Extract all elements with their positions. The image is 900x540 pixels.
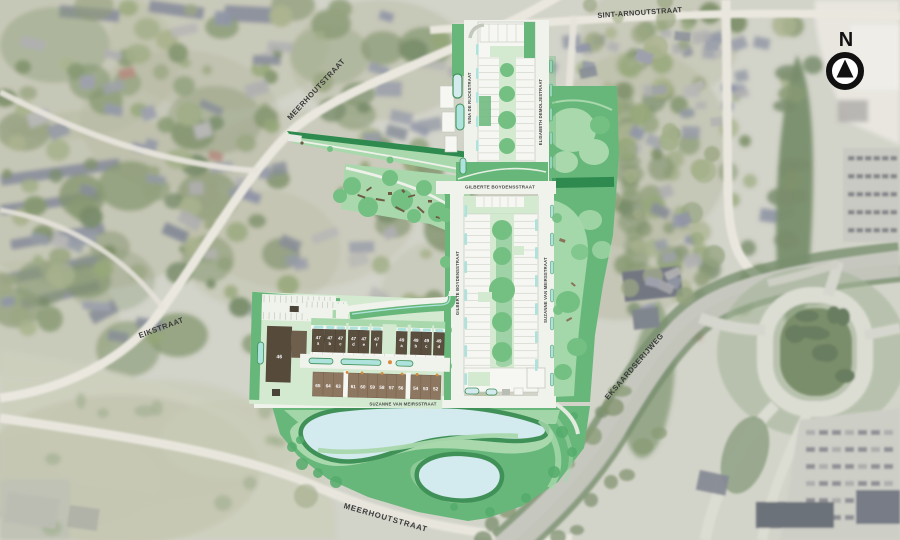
svg-text:47: 47	[351, 336, 357, 341]
svg-text:49: 49	[436, 338, 442, 343]
svg-text:47: 47	[327, 335, 333, 340]
svg-text:64: 64	[326, 383, 332, 388]
svg-text:52: 52	[433, 386, 439, 391]
svg-text:49: 49	[399, 337, 405, 342]
svg-text:53: 53	[423, 386, 429, 391]
svg-text:49: 49	[424, 338, 430, 343]
svg-text:47: 47	[338, 336, 344, 341]
svg-text:59: 59	[370, 385, 376, 390]
svg-text:63: 63	[336, 384, 342, 389]
svg-text:NINA DE RIJCKSTRAAT: NINA DE RIJCKSTRAAT	[467, 72, 472, 124]
svg-text:GILBERTE BOYDENSSTRAAT: GILBERTE BOYDENSSTRAAT	[455, 251, 460, 315]
svg-text:SUZANNE VAN MEIRSSTRAAT: SUZANNE VAN MEIRSSTRAAT	[543, 257, 548, 323]
svg-text:ELISABETH DEMOLJESTRAAT: ELISABETH DEMOLJESTRAAT	[538, 79, 543, 146]
svg-text:65: 65	[315, 383, 321, 388]
svg-text:58: 58	[379, 385, 385, 390]
svg-text:49: 49	[413, 338, 419, 343]
svg-text:47: 47	[316, 335, 322, 340]
svg-text:54: 54	[413, 386, 419, 391]
svg-text:60: 60	[360, 384, 366, 389]
svg-text:SUZANNE VAN MEIRSSTRAAT: SUZANNE VAN MEIRSSTRAAT	[369, 402, 436, 407]
svg-text:47: 47	[374, 337, 380, 342]
svg-text:46: 46	[276, 354, 282, 360]
svg-text:N: N	[839, 29, 853, 51]
svg-text:56: 56	[398, 385, 404, 390]
svg-text:57: 57	[389, 385, 395, 390]
svg-text:GILBERTE BOYDENSSTRAAT: GILBERTE BOYDENSSTRAAT	[465, 185, 535, 190]
svg-text:47: 47	[361, 336, 367, 341]
svg-text:61: 61	[351, 384, 357, 389]
